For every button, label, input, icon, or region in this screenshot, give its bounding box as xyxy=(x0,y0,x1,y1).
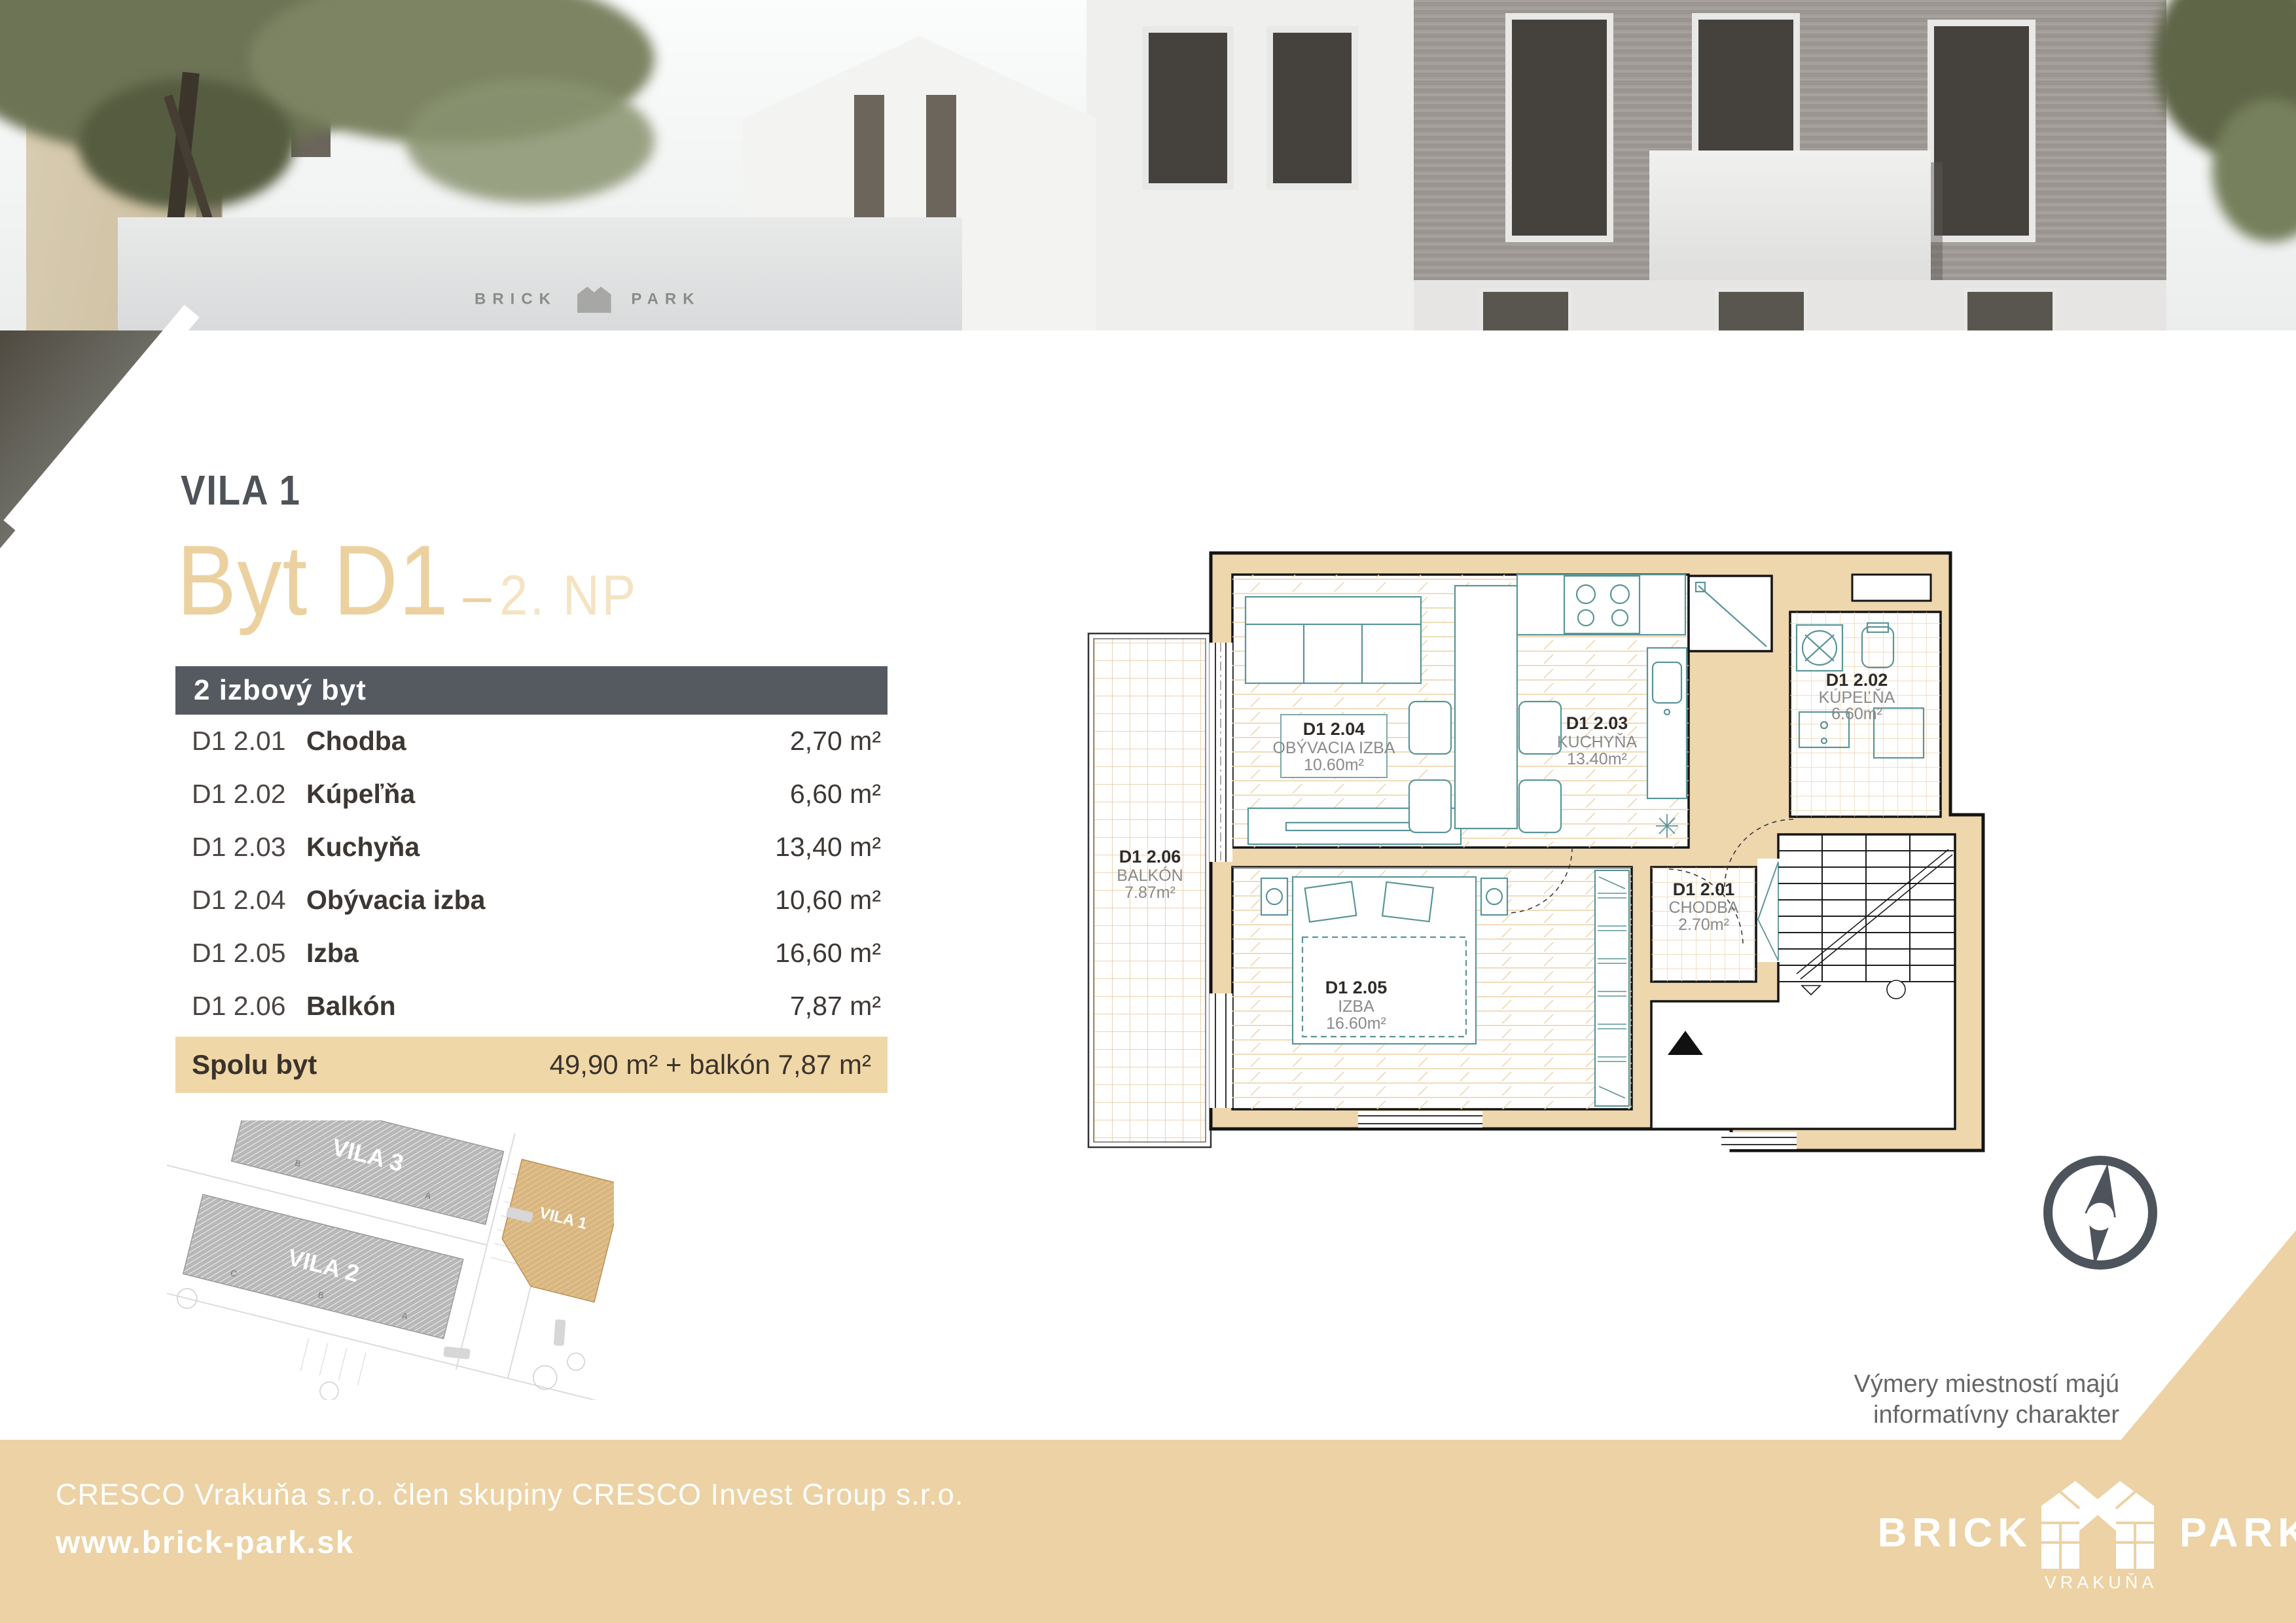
room-name: Obývacia izba xyxy=(306,885,775,916)
nightstand xyxy=(1481,878,1507,915)
table-row: D1 2.06 Balkón 7,87 m² xyxy=(175,980,888,1033)
table-row: D1 2.02 Kúpeľňa 6,60 m² xyxy=(175,768,888,821)
footer-company-line: CRESCO Vrakuňa s.r.o. člen skupiny CRESC… xyxy=(56,1478,963,1512)
room-label-area: 2.70m² xyxy=(1678,916,1729,934)
wall-niche xyxy=(1852,575,1931,601)
fence-brand-sign: BRICK PARK xyxy=(475,287,701,313)
table-row: D1 2.05 Izba 16,60 m² xyxy=(175,927,888,980)
room-label-code: D1 2.04 xyxy=(1303,719,1365,739)
room-name: Balkón xyxy=(306,991,790,1022)
disclaimer-line1: Výmery miestností majú xyxy=(1792,1369,2119,1400)
room-label-area: 13.40m² xyxy=(1567,750,1627,768)
photo-window xyxy=(1964,288,2056,330)
wardrobe xyxy=(1595,870,1629,1106)
kitchen-island xyxy=(1455,586,1517,829)
room-label-name: KUCHYŇA xyxy=(1557,732,1638,751)
room-area: 6,60 m² xyxy=(790,779,888,810)
room-label-code: D1 2.02 xyxy=(1826,670,1888,690)
bedroom-window xyxy=(1358,1111,1482,1128)
title-dash: – xyxy=(463,564,492,627)
room-label-area: 10.60m² xyxy=(1304,756,1364,774)
photo-fence-wall xyxy=(118,217,962,330)
photo-window xyxy=(854,95,884,236)
room-label-name: KÚPEĽŇA xyxy=(1819,688,1895,707)
room-label-area: 6.60m² xyxy=(1831,705,1882,723)
photo-diagonal-wedge xyxy=(0,330,196,553)
chair xyxy=(1519,702,1561,754)
sofa xyxy=(1246,597,1421,683)
table-row: D1 2.04 Obývacia izba 10,60 m² xyxy=(175,874,888,927)
stove xyxy=(1564,576,1640,633)
chair xyxy=(1519,780,1561,832)
building-render-photo: BRICK PARK xyxy=(0,0,2296,330)
table-summary-row: Spolu byt 49,90 m² + balkón 7,87 m² xyxy=(175,1037,888,1093)
summary-label: Spolu byt xyxy=(192,1049,550,1080)
brick-park-logo: BRICK PARK VRAKUŇA xyxy=(1931,1469,2271,1600)
logo-brick-icon xyxy=(2037,1477,2158,1571)
table-row: D1 2.03 Kuchyňa 13,40 m² xyxy=(175,821,888,874)
summary-value: 49,90 m² + balkón 7,87 m² xyxy=(550,1049,871,1080)
room-label-code: D1 2.01 xyxy=(1673,880,1735,899)
logo-vrakuna-text: VRAKUŇA xyxy=(1931,1573,2271,1593)
room-code: D1 2.03 xyxy=(175,832,306,863)
tree-canopy xyxy=(406,79,655,203)
room-area: 16,60 m² xyxy=(775,938,888,969)
nightstand xyxy=(1261,878,1287,915)
room-code: D1 2.04 xyxy=(175,885,306,916)
room-code: D1 2.06 xyxy=(175,991,306,1022)
sign-brick-text: BRICK xyxy=(475,290,557,308)
room-area: 10,60 m² xyxy=(775,885,888,916)
sign-logo-icon xyxy=(577,287,611,313)
page-title-project: VILA 1 xyxy=(181,466,301,514)
unit-name: Byt D1 xyxy=(177,525,449,636)
brochure-page: BRICK PARK VILA 1 Byt D1–2. NP 2 izbový … xyxy=(0,0,2296,1623)
room-area: 7,87 m² xyxy=(790,991,888,1022)
room-label-area: 16.60m² xyxy=(1326,1014,1386,1033)
room-area: 2,70 m² xyxy=(790,726,888,757)
room-name: Kúpeľňa xyxy=(306,779,790,810)
floor-label: 2. NP xyxy=(499,564,638,627)
table-header: 2 izbový byt xyxy=(175,666,888,715)
photo-window xyxy=(1715,288,1808,330)
site-plan-minimap: VILA 3 VILA 2 VILA 1 B A C B A xyxy=(167,1120,614,1400)
room-label-name: OBÝVACIA IZBA xyxy=(1272,738,1395,757)
compass-icon xyxy=(2037,1150,2163,1275)
room-code: D1 2.01 xyxy=(175,726,306,757)
room-code: D1 2.05 xyxy=(175,938,306,969)
page-title-unit: Byt D1–2. NP xyxy=(177,524,638,638)
room-name: Chodba xyxy=(306,726,790,757)
photo-window xyxy=(1505,13,1613,242)
photo-balcony xyxy=(1649,151,1931,285)
photo-window xyxy=(1142,26,1234,190)
photo-white-building xyxy=(1086,0,1414,330)
photo-window xyxy=(1928,20,2036,242)
room-label-name: IZBA xyxy=(1338,997,1374,1016)
sign-park-text: PARK xyxy=(631,290,700,308)
disclaimer-line2: informatívny charakter xyxy=(1792,1400,2119,1431)
room-label-code: D1 2.06 xyxy=(1119,847,1181,866)
stair-window xyxy=(1721,1132,1797,1149)
room-name: Izba xyxy=(306,938,775,969)
disclaimer-text: Výmery miestností majú informatívny char… xyxy=(1792,1369,2119,1431)
floor-plan: D1 2.04 OBÝVACIA IZBA 10.60m² D1 2.03 KU… xyxy=(1077,537,1986,1158)
chair xyxy=(1409,702,1451,754)
photo-window xyxy=(1266,26,1358,190)
logo-park-text: PARK xyxy=(2179,1510,2296,1556)
table-row: D1 2.01 Chodba 2,70 m² xyxy=(175,715,888,768)
room-area: 13,40 m² xyxy=(775,832,888,863)
photo-window xyxy=(926,95,956,236)
room-table: 2 izbový byt D1 2.01 Chodba 2,70 m² D1 2… xyxy=(175,666,888,1093)
photo-window xyxy=(1479,288,1572,330)
room-label-name: CHODBA xyxy=(1669,899,1739,917)
footer-website: www.brick-park.sk xyxy=(56,1525,354,1561)
room-label-area: 7.87m² xyxy=(1124,883,1175,902)
chair xyxy=(1409,780,1451,832)
room-label-name: BALKÓN xyxy=(1117,866,1183,885)
room-code: D1 2.02 xyxy=(175,779,306,810)
room-label-code: D1 2.05 xyxy=(1325,978,1388,997)
logo-brick-text: BRICK xyxy=(1878,1510,2032,1556)
room-name: Kuchyňa xyxy=(306,832,775,863)
room-label-code: D1 2.03 xyxy=(1566,713,1628,733)
